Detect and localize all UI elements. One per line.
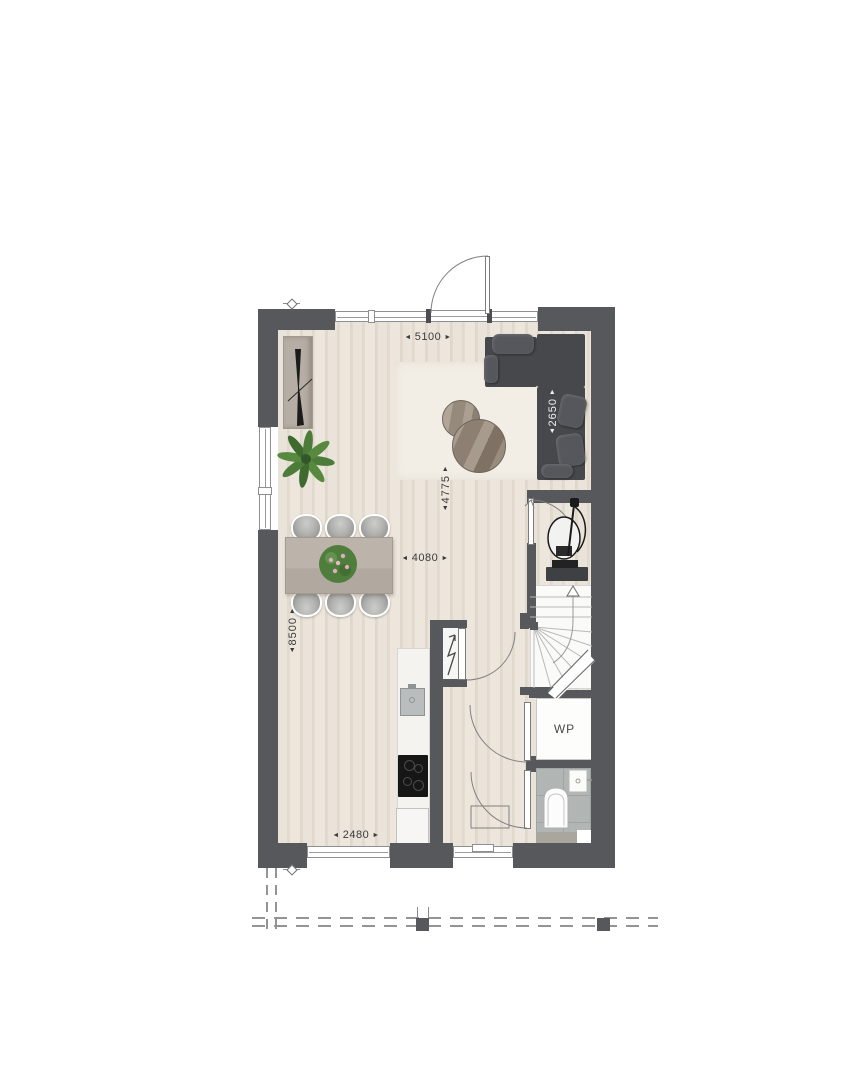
floor-plan: WP: [0, 0, 863, 1080]
burner-icon: [403, 777, 412, 786]
wall-wp-toilet: [535, 760, 593, 768]
sofa-armrest: [484, 355, 498, 383]
wall-bottom-right: [513, 843, 615, 868]
arrow-down-icon: ▼: [289, 647, 296, 654]
wp-door-leaf: [524, 702, 531, 761]
wall-meter-closet-bottom: [430, 679, 467, 687]
wall-meter-closet-top: [430, 620, 467, 628]
boundary-tick: [428, 907, 429, 918]
boundary-dashed-vertical: [266, 868, 268, 932]
coffee-table-large: [452, 419, 506, 473]
arrow-up-icon: ▲: [549, 389, 556, 396]
wall-left-upper: [258, 309, 278, 427]
boundary-tick: [417, 907, 418, 918]
marker-diamond: [286, 298, 297, 309]
dimension-value: 4080: [412, 552, 438, 564]
dimension-living-4775: ▲ 4775 ▼: [437, 459, 454, 519]
staircase: [530, 585, 592, 689]
sofa-back-cushion: [492, 334, 534, 354]
wall-kitchen-hall: [430, 620, 443, 843]
dimension-value: 2650: [547, 398, 559, 426]
wall-bottom-middle: [390, 843, 453, 868]
wp-room-label: WP: [536, 698, 593, 760]
arrow-right-icon: ►: [441, 555, 448, 562]
dimension-value: 4775: [440, 475, 452, 503]
meter-closet-door-leaf: [458, 628, 466, 680]
arrow-up-icon: ▲: [289, 608, 296, 615]
window-top-1: [335, 311, 430, 322]
dimension-sofa-2650: ▲ 2650 ▼: [544, 383, 561, 441]
front-door-leaf: [485, 256, 490, 314]
dining-table: [285, 537, 393, 594]
arrow-up-icon: ▲: [442, 466, 449, 473]
vent-grille-icon: [472, 844, 494, 852]
dimension-value: 2480: [343, 829, 369, 841]
dimension-kitchen-2480: ◄ 2480 ►: [326, 828, 386, 842]
boundary-post: [416, 918, 429, 931]
burner-icon: [414, 764, 423, 773]
arrow-right-icon: ►: [372, 832, 379, 839]
kitchen-sink: [400, 688, 425, 716]
cooktop: [398, 755, 428, 797]
arrow-down-icon: ▼: [442, 505, 449, 512]
window-transom: [258, 487, 272, 495]
boundary-post: [597, 918, 610, 931]
sofa-arm-cushion: [541, 464, 573, 478]
window-bottom-1: [307, 846, 390, 858]
dimension-value: 5100: [415, 331, 441, 343]
boundary-dashed-vertical: [275, 868, 277, 932]
dimension-dining-4080: ◄ 4080 ►: [395, 551, 455, 565]
toilet-room-floor: [536, 768, 593, 832]
burner-icon: [413, 780, 424, 791]
wall-wp-top: [529, 690, 593, 698]
wall-right: [591, 307, 615, 868]
wall-stair-stub: [520, 613, 529, 629]
arrow-right-icon: ►: [444, 334, 451, 341]
dimension-depth-8500: ▲ 8500 ▼: [284, 600, 301, 662]
arrow-left-icon: ◄: [401, 555, 408, 562]
sofa-corner: [537, 334, 585, 387]
toilet-door-leaf: [524, 770, 531, 829]
dimension-width-5100: ◄ 5100 ►: [398, 330, 458, 344]
window-top-2: [488, 311, 538, 322]
wall-hall-top: [527, 490, 593, 503]
living-door-leaf: [528, 498, 534, 545]
kitchen-appliance: [396, 808, 429, 845]
arrow-down-icon: ▼: [549, 428, 556, 435]
door-jamb: [426, 309, 431, 323]
wall-left-lower: [258, 530, 278, 845]
tv-cabinet: [283, 336, 313, 429]
wall-bottom-left: [258, 843, 307, 868]
arrow-left-icon: ◄: [404, 334, 411, 341]
front-door-arc: [431, 256, 488, 313]
dimension-value: 8500: [287, 617, 299, 645]
arrow-left-icon: ◄: [332, 832, 339, 839]
front-door-threshold: [428, 310, 490, 322]
window-mullion: [368, 310, 375, 323]
window-left: [259, 427, 271, 530]
